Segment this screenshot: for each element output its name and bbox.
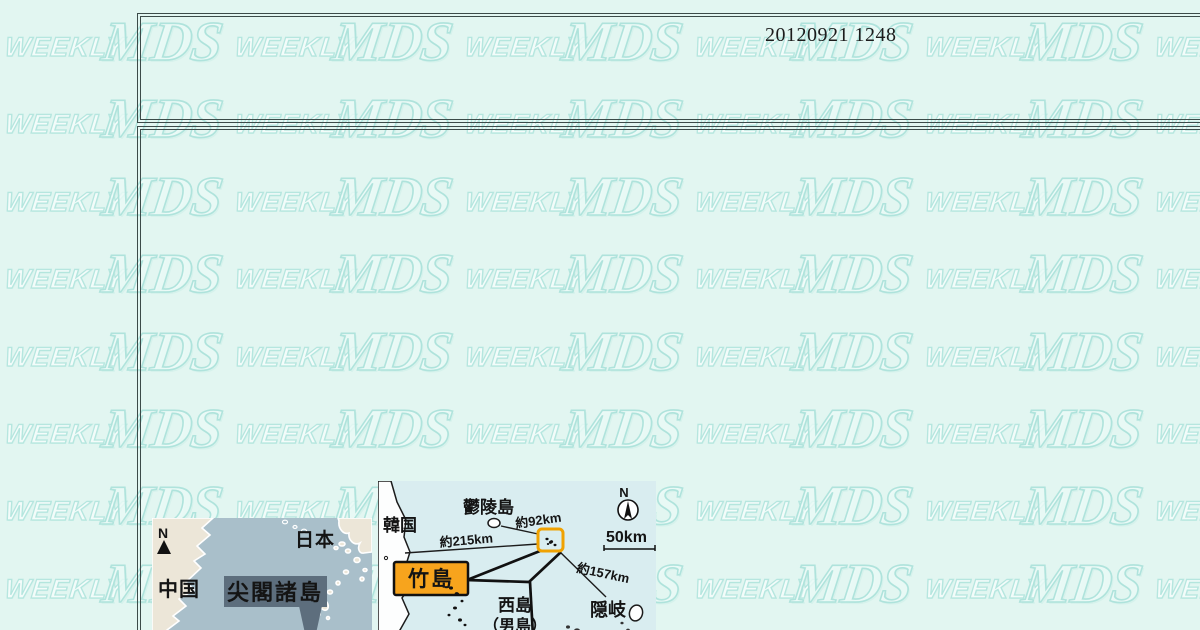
korea-label: 韓国	[383, 515, 417, 535]
takeshima-map: 韓国 鬱陵島 約92km 約215km 約157km 竹島	[378, 481, 656, 630]
header-frame-inner: 20120921 1248	[140, 16, 1200, 120]
takeshima-compass-n: N	[619, 485, 628, 500]
header-frame: 20120921 1248	[137, 13, 1200, 123]
nishijima-label-line2: （男島）	[483, 616, 547, 630]
senkaku-callout-label: 尖閣諸島	[227, 580, 323, 605]
ulleungdo-island	[488, 519, 500, 528]
ulleungdo-label: 鬱陵島	[463, 497, 514, 517]
china-label: 中国	[158, 577, 200, 601]
oki-label: 隠岐	[590, 599, 627, 620]
japan-label: 日本	[295, 528, 335, 551]
takeshima-label: 竹島	[407, 567, 454, 591]
archived-news-page: WEEKLYMDSWEEKLYMDSWEEKLYMDSWEEKLYMDSWEEK…	[0, 0, 1200, 630]
scale-label: 50km	[606, 529, 647, 546]
korea-coast-islet	[384, 556, 387, 559]
timestamp-text: 20120921 1248	[765, 24, 897, 47]
senkaku-compass-n: N	[158, 525, 168, 541]
nishijima-label-line1: 西島	[498, 595, 532, 615]
senkaku-map: N 中国 日本 尖閣諸島	[152, 518, 372, 630]
